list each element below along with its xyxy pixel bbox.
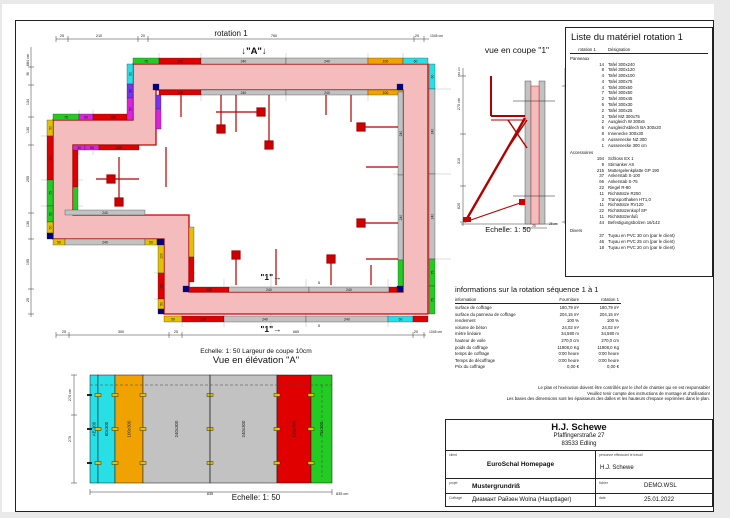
- info-row: surface du panneau de coffrage204,15 m²2…: [455, 312, 621, 319]
- materials-col-designation: Désignation: [604, 47, 708, 52]
- formwork-panel: [398, 260, 403, 287]
- formwork-panel: [157, 239, 164, 245]
- dim-label: 270: [68, 436, 72, 442]
- section-view-scale: Echelle: 1: 50: [453, 225, 563, 234]
- dim-label: 20: [415, 34, 419, 38]
- dim-label: 20: [141, 34, 145, 38]
- info-cell: 11908,0 Kg: [537, 345, 579, 352]
- info-cell: 0:00 heure: [537, 351, 579, 358]
- materials-item: 1Aussenecke 300 cm: [570, 143, 708, 149]
- plan-panels: 7512024024010060120240240100602402407575…: [47, 58, 435, 322]
- info-row: temps de coffrage0:00 heure0:00 heure: [455, 351, 621, 358]
- person-cell: personne effectuant le travail H.J. Sche…: [596, 451, 712, 478]
- floor-plan: rotation 1 ↓"A"↓: [21, 27, 451, 349]
- materials-col-rotation: rotation 1: [570, 47, 604, 52]
- info-col-information: information: [455, 297, 537, 302]
- panel-size-label: 50: [128, 107, 132, 111]
- panel-size-label: 100: [383, 59, 389, 63]
- tie-anchor-icon: [308, 462, 314, 465]
- panel-size-label: 60: [430, 75, 434, 79]
- tie-anchor-icon: [140, 428, 146, 431]
- section-view: vue en coupe "1": [453, 45, 581, 245]
- materials-item-designation: Befestigungsbolzen 16/142: [607, 220, 708, 226]
- materials-list-title: Liste du matériel rotation 1: [571, 32, 708, 43]
- file-label: fichier: [599, 481, 608, 485]
- dim-label: 620: [457, 203, 461, 209]
- info-row: rendement100 %100 %: [455, 318, 621, 325]
- elevation-panel-label: 75x300: [319, 421, 324, 436]
- info-table-title: informations sur la rotation séquence 1 …: [455, 285, 621, 294]
- tie-anchor-icon: [274, 462, 280, 465]
- panel-size-label: 120: [48, 155, 52, 161]
- formwork-panel: [156, 109, 161, 129]
- company-name: H.J. Schewe: [446, 422, 712, 433]
- info-cell: 270,0 cm: [537, 338, 579, 345]
- info-cell: Prix du coffrage: [455, 364, 537, 371]
- panel-size-label: 120: [200, 317, 206, 321]
- info-row: mètre linéaire34,580 m34,580 m: [455, 331, 621, 338]
- info-cell: hauteur de voile: [455, 338, 537, 345]
- panel-size-label: 50: [159, 302, 163, 306]
- panel-size-label: 30: [128, 89, 132, 93]
- panel-size-label: 75: [430, 271, 434, 275]
- info-cell: 100 %: [537, 318, 579, 325]
- panel-size-label: 75: [144, 59, 148, 63]
- dim-label: 25: [26, 298, 30, 302]
- title-block: H.J. Schewe Pfaffingerstraße 27 83533 Ed…: [445, 419, 713, 507]
- project-cell: projet Mustergrundriß: [446, 479, 596, 493]
- panel-size-label: 240: [346, 288, 352, 292]
- formwork-panel: [189, 227, 194, 257]
- info-cell: 0:00 heure: [537, 358, 579, 365]
- tie-anchor-icon: [95, 394, 101, 397]
- info-col-rotation1: rotation 1: [579, 297, 619, 302]
- title-block-row-coffrage: Coffrage Диамант Райзен Wolna (Hauptlage…: [446, 494, 712, 507]
- tie-anchor-icon: [274, 428, 280, 431]
- tie-anchor-icon: [95, 462, 101, 465]
- formwork-panel: [183, 286, 189, 292]
- tie-anchor-icon: [140, 462, 146, 465]
- info-row: surface de coffrage180,79 m²180,79 m²: [455, 305, 621, 312]
- panel-size-label: 100: [159, 253, 163, 259]
- panel-size-label: 100: [383, 91, 389, 95]
- panel-size-label: 50: [48, 126, 52, 130]
- coffrage-cell: Coffrage Диамант Райзен Wolna (Hauptlage…: [446, 494, 596, 507]
- dim-label: 300: [118, 330, 124, 334]
- panel-size-label: 50: [57, 240, 61, 244]
- info-table-header: information Fourniture rotation 1: [455, 297, 621, 304]
- info-col-fourniture: Fourniture: [537, 297, 579, 302]
- project-label: projet: [449, 481, 457, 485]
- elevation-panel-label: 120x300: [292, 420, 297, 437]
- formwork-panel: [47, 233, 53, 239]
- panel-size-label: 50: [90, 146, 94, 150]
- dim-label: 255: [26, 176, 30, 182]
- elevation-title: Vue en élévation "A": [111, 355, 401, 366]
- panel-size-label: 120: [177, 59, 183, 63]
- panel-size-label: 240: [324, 91, 330, 95]
- person-value: H.J. Schewe: [600, 465, 634, 471]
- tie-anchor-icon: [308, 428, 314, 431]
- date-label: date: [599, 496, 606, 500]
- materials-item: 44Befestigungsbolzen 16/142: [570, 220, 708, 226]
- dim-label: 134: [26, 99, 30, 105]
- panel-size-label: 240: [324, 59, 330, 63]
- panel-size-label: 50: [84, 115, 88, 119]
- materials-item: 18Tuyau en PVC 20 cm (par le client): [570, 245, 708, 251]
- tie-anchor-icon: [308, 394, 314, 397]
- spacer-dim-lower: 5: [318, 323, 321, 328]
- tie-anchor-icon: [112, 462, 118, 465]
- info-cell: 204,15 m²: [537, 312, 579, 319]
- section-dim-labels: 684 cm270 cm310620300 cm3002525 cm: [457, 67, 571, 228]
- panel-size-label: 60: [399, 317, 403, 321]
- date-value: 25.01.2022: [644, 497, 674, 503]
- panel-size-label: 120: [177, 91, 183, 95]
- panel-size-label: 75: [48, 191, 52, 195]
- panel-size-label: 240: [399, 131, 403, 137]
- dim-label: 25: [174, 330, 178, 334]
- formwork-panel: [397, 286, 403, 292]
- panel-size-label: 50: [171, 317, 175, 321]
- wall-outline: [53, 64, 428, 314]
- company-block: H.J. Schewe Pfaffingerstraße 27 83533 Ed…: [446, 420, 712, 451]
- client-cell: client EuroSchal Homepage: [446, 451, 596, 478]
- info-row: Prix du coffrage0,00 €0,00 €: [455, 364, 621, 371]
- panel-size-label: 120: [159, 283, 163, 289]
- panel-size-label: 240: [399, 215, 403, 221]
- dim-label: 1045 cm: [429, 330, 442, 334]
- paper: rotation 1 ↓"A"↓: [2, 4, 714, 512]
- panel-size-label: 240: [266, 288, 272, 292]
- client-value: EuroSchal Homepage: [446, 461, 595, 468]
- info-cell: 34,580 m: [537, 331, 579, 338]
- section-marker-1-upper: "1"→: [260, 272, 281, 282]
- info-row: Temps de décoffrage0:00 heure0:00 heure: [455, 358, 621, 365]
- info-row: poids du coffrage11908,0 Kg11908,0 Kg: [455, 345, 621, 352]
- materials-list: Liste du matériel rotation 1 rotation 1 …: [565, 27, 713, 277]
- panel-size-label: 30: [77, 146, 81, 150]
- info-cell: 11908,0 Kg: [579, 345, 619, 352]
- info-row: hauteur de voile270,0 cm270,0 cm: [455, 338, 621, 345]
- coffrage-value: Диамант Райзен Wolna (Hauptlager): [472, 497, 571, 503]
- panel-size-label: 50: [128, 72, 132, 76]
- panel-size-label: 75: [64, 115, 68, 119]
- spacer-dim-upper: 5: [318, 280, 321, 285]
- company-address-street: Pfaffingerstraße 27: [446, 433, 712, 441]
- formwork-panel: [413, 316, 428, 322]
- info-cell: 34,580 m: [579, 331, 619, 338]
- panel-size-label: 240: [102, 211, 108, 215]
- panel-size-label: 60: [414, 59, 418, 63]
- section-view-drawing: 684 cm270 cm310620300 cm3002525 cm: [453, 56, 581, 234]
- info-cell: 0:00 heure: [579, 358, 619, 365]
- push-pull-prop: [463, 76, 527, 222]
- materials-item-qty: 18: [570, 245, 607, 251]
- materials-item-designation: Aussenecke 300 cm: [607, 143, 708, 149]
- info-cell: 204,15 m²: [579, 312, 619, 319]
- info-cell: temps de coffrage: [455, 351, 537, 358]
- dim-label: 310: [457, 158, 461, 164]
- dim-label: 665: [293, 330, 299, 334]
- info-cell: 180,79 m²: [537, 305, 579, 312]
- client-label: client: [449, 453, 457, 457]
- file-cell: fichier DEMO.WSL: [596, 479, 712, 493]
- tie-anchor-icon: [112, 394, 118, 397]
- section-marker-1-lower: "1"→: [260, 324, 281, 334]
- info-cell: 24,02 m³: [537, 325, 579, 332]
- panel-size-label: 240: [241, 59, 247, 63]
- panel-size-label: 240: [262, 317, 268, 321]
- dim-label: 195: [26, 259, 30, 265]
- info-cell: 0,00 €: [537, 364, 579, 371]
- info-cell: surface du panneau de coffrage: [455, 312, 537, 319]
- panel-size-label: 120: [116, 146, 122, 150]
- dim-label: 25: [62, 330, 66, 334]
- section-marker-a: ↓"A"↓: [241, 46, 266, 57]
- note-line: Les bases des dimensions sont les épaiss…: [350, 396, 710, 402]
- panel-size-label: 120: [110, 115, 116, 119]
- project-value: Mustergrundriß: [472, 483, 520, 490]
- tie-anchor-icon: [95, 428, 101, 431]
- tie-anchor-icon: [112, 428, 118, 431]
- elevation-panel-label: 240x300: [241, 420, 246, 437]
- info-cell: 0:00 heure: [579, 351, 619, 358]
- panel-size-label: 50: [48, 226, 52, 230]
- materials-list-header: rotation 1 Désignation: [570, 47, 708, 54]
- file-value: DEMO.WSL: [644, 483, 677, 489]
- elevation-scale-note: Echelle: 1: 50 Largeur de coupe 10cm: [111, 348, 401, 355]
- info-cell: 24,02 m³: [579, 325, 619, 332]
- info-cell: surface de coffrage: [455, 305, 537, 312]
- elevation-panel-label: 100x300: [127, 420, 132, 437]
- info-cell: 180,79 m²: [579, 305, 619, 312]
- date-cell: date 25.01.2022: [596, 494, 712, 507]
- info-cell: 270,0 cm: [579, 338, 619, 345]
- info-cell: 100 %: [579, 318, 619, 325]
- sheet-border: rotation 1 ↓"A"↓: [15, 20, 714, 512]
- dim-label: 760: [271, 34, 277, 38]
- drawing-sheet-canvas: rotation 1 ↓"A"↓: [0, 0, 730, 518]
- disclaimer-notes: Le plan et l'exécution doivent être cont…: [350, 385, 710, 402]
- dim-label: 684 cm: [26, 54, 30, 66]
- info-cell: poids du coffrage: [455, 345, 537, 352]
- panel-size-label: 120: [206, 288, 212, 292]
- panel-size-label: 50: [149, 240, 153, 244]
- tie-anchor-icon: [274, 394, 280, 397]
- materials-item-qty: 1: [570, 143, 607, 149]
- dim-label: 36: [26, 72, 30, 76]
- elevation-panels: AE 30060x300100x300240x300240x300120x300…: [90, 375, 332, 483]
- formwork-panel: [397, 84, 403, 90]
- dim-label: 684 cm: [457, 67, 461, 77]
- section-view-title: vue en coupe "1": [453, 45, 581, 55]
- panel-size-label: 240: [102, 240, 108, 244]
- plan-title: rotation 1: [214, 29, 248, 38]
- panel-size-label: 240: [430, 214, 434, 220]
- dim-label: 270 cm: [68, 389, 72, 401]
- elevation-panel-label: 60x300: [104, 421, 109, 436]
- info-cell: Temps de décoffrage: [455, 358, 537, 365]
- formwork-panel: [73, 145, 78, 187]
- company-address-city: 83533 Edling: [446, 441, 712, 449]
- materials-item-designation: Tuyau en PVC 20 cm (par le client): [607, 245, 708, 251]
- panel-size-label: 240: [430, 129, 434, 135]
- info-cell: 0,00 €: [579, 364, 619, 371]
- panel-size-label: 240: [241, 91, 247, 95]
- panel-size-label: 240: [344, 317, 350, 321]
- info-cell: rendement: [455, 318, 537, 325]
- dim-label: 270 cm: [457, 98, 461, 110]
- info-rows: surface de coffrage180,79 m²180,79 m²sur…: [455, 305, 621, 371]
- info-cell: mètre linéaire: [455, 331, 537, 338]
- coffrage-label: Coffrage: [449, 496, 462, 500]
- formwork-panel: [156, 95, 161, 109]
- dim-label: 20: [414, 330, 418, 334]
- panel-size-label: 75: [430, 298, 434, 302]
- materials-item-qty: 44: [570, 220, 607, 226]
- person-label: personne effectuant le travail: [599, 453, 642, 457]
- rotation-info-table: informations sur la rotation séquence 1 …: [455, 285, 621, 385]
- formwork-panel: [158, 309, 164, 314]
- dim-label: 130: [26, 221, 30, 227]
- elevation-scale: Echelle: 1: 50: [111, 493, 401, 502]
- dim-label: 1045 cm: [430, 34, 443, 38]
- elevation-drawing: AE 30060x300100x300240x300240x300120x300…: [60, 367, 400, 497]
- title-block-row-project: projet Mustergrundriß fichier DEMO.WSL: [446, 479, 712, 494]
- formwork-panel: [153, 84, 159, 90]
- elevation-panel-label: 240x300: [174, 420, 179, 437]
- materials-items: Panneaux14Tafel 300x2408Tafel 300x1204Ta…: [570, 56, 708, 250]
- panel-size-label: 50: [48, 212, 52, 216]
- info-row: volume de béton24,02 m³24,02 m³: [455, 325, 621, 332]
- dim-label: 130: [26, 127, 30, 133]
- info-cell: volume de béton: [455, 325, 537, 332]
- title-block-row-client: client EuroSchal Homepage personne effec…: [446, 451, 712, 479]
- formwork-panel: [189, 257, 194, 282]
- dim-label: 210: [96, 34, 102, 38]
- dim-label: 25: [60, 34, 64, 38]
- tie-anchor-icon: [140, 394, 146, 397]
